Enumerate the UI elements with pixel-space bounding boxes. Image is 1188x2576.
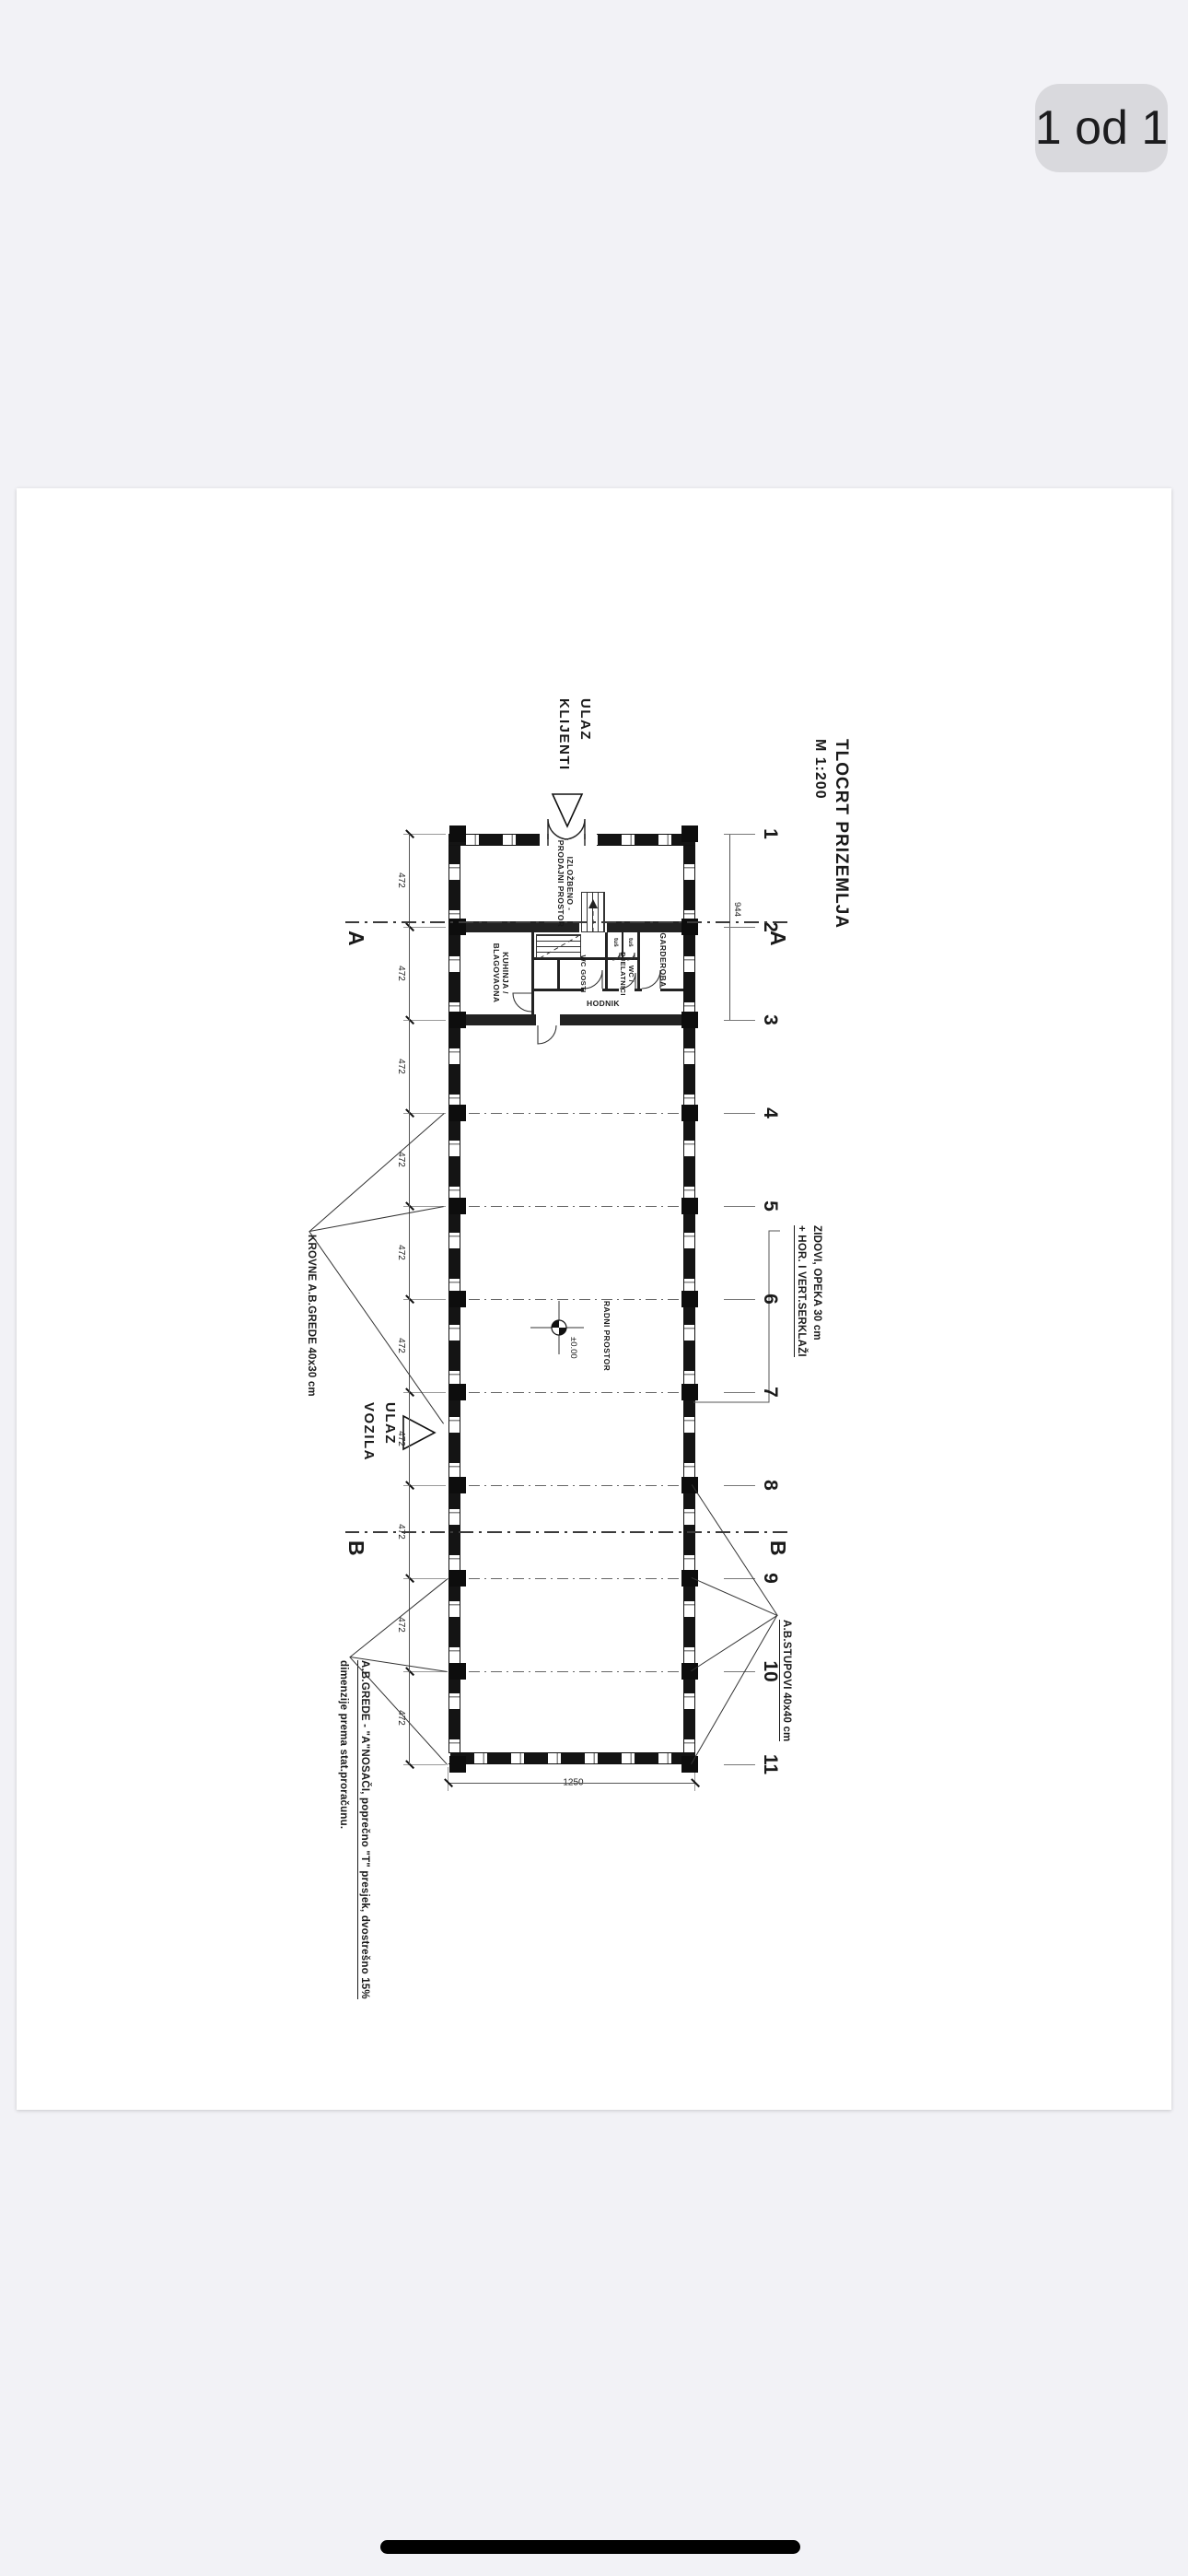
grid-number: 11 xyxy=(759,1751,781,1778)
column xyxy=(449,1663,466,1680)
column xyxy=(681,825,698,842)
grid-number: 10 xyxy=(759,1657,781,1685)
column xyxy=(449,825,466,842)
grid-tick xyxy=(724,1392,755,1393)
page-indicator-badge: 1 od 1 xyxy=(1035,84,1168,172)
bay-dimension: 472 xyxy=(396,1426,406,1452)
grid-tick xyxy=(724,1206,755,1207)
grid-tick xyxy=(724,1764,755,1765)
section-letter-B: B xyxy=(344,1540,368,1556)
grid-axis-line xyxy=(464,1578,679,1579)
column xyxy=(449,1756,466,1773)
section-letter-A: A xyxy=(765,931,790,946)
bay-dimension: 472 xyxy=(396,1240,406,1266)
bay-dimension: 472 xyxy=(396,868,406,894)
grid-axis-line xyxy=(464,1206,679,1207)
grid-axis-line xyxy=(464,1113,679,1114)
grid-axis-line xyxy=(464,1299,679,1300)
grid-tick xyxy=(724,927,755,928)
column xyxy=(449,1384,466,1400)
column xyxy=(449,1105,466,1121)
level-marker-icon xyxy=(530,1301,584,1354)
floorplan-drawing: TLOCRT PRIZEMLJA M 1:200 xyxy=(17,488,1171,2110)
section-line-A xyxy=(345,921,787,923)
dim-chain-line xyxy=(409,834,410,1764)
grid-axis-line xyxy=(464,1392,679,1393)
stair-direction-line xyxy=(540,899,593,958)
stair-arrow-icon xyxy=(588,899,598,908)
section-letter-A: A xyxy=(344,931,368,946)
grid-tick xyxy=(724,1020,755,1021)
column xyxy=(681,1198,698,1214)
column xyxy=(681,1663,698,1680)
section-letter-B: B xyxy=(765,1540,790,1556)
column xyxy=(449,1012,466,1028)
grid-tick xyxy=(724,1671,755,1672)
phone-screen: 1 od 1 TLOCRT PRIZEMLJA M 1:200 xyxy=(0,0,1188,2576)
grid-tick xyxy=(724,1578,755,1579)
grid-tick xyxy=(724,834,755,835)
column xyxy=(449,1291,466,1307)
grid-number: 7 xyxy=(759,1378,781,1406)
grid-tick xyxy=(724,1299,755,1300)
bay-dimension: 472 xyxy=(396,1054,406,1080)
walls-annotation-leader xyxy=(693,1231,780,1402)
grid-number: 4 xyxy=(759,1099,781,1127)
grid-number: 1 xyxy=(759,820,781,848)
grid-number: 5 xyxy=(759,1192,781,1220)
home-indicator[interactable] xyxy=(380,2540,800,2554)
column xyxy=(681,1012,698,1028)
column xyxy=(681,1384,698,1400)
grid-tick xyxy=(724,1113,755,1114)
column xyxy=(681,1291,698,1307)
grid-axis-line xyxy=(464,1485,679,1486)
interior-doors xyxy=(513,953,660,1044)
grid-tick xyxy=(724,1485,755,1486)
column xyxy=(681,1105,698,1121)
bay-dimension: 472 xyxy=(396,961,406,987)
grid-number: 9 xyxy=(759,1564,781,1592)
grid-number: 3 xyxy=(759,1006,781,1034)
bay-dimension: 472 xyxy=(396,1333,406,1359)
grid-number: 6 xyxy=(759,1285,781,1313)
client-entrance-arrow-icon xyxy=(553,794,582,826)
column xyxy=(681,1756,698,1773)
column xyxy=(449,1477,466,1493)
column xyxy=(449,1198,466,1214)
grid-axis-line xyxy=(464,1671,679,1672)
pdf-page[interactable]: TLOCRT PRIZEMLJA M 1:200 xyxy=(17,488,1171,2110)
column xyxy=(449,1570,466,1587)
page-indicator-label: 1 od 1 xyxy=(1035,100,1169,156)
grid-number: 8 xyxy=(759,1471,781,1499)
